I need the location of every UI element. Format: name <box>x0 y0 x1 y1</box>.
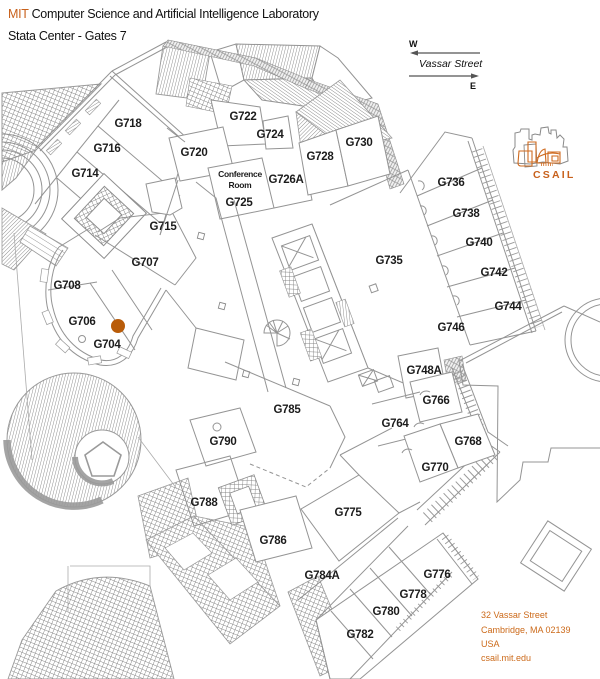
svg-text:G716: G716 <box>94 143 121 155</box>
svg-text:G704: G704 <box>94 339 122 351</box>
svg-text:G780: G780 <box>373 606 400 618</box>
svg-text:G768: G768 <box>455 436 483 448</box>
svg-text:MIT Computer Science and Artif: MIT Computer Science and Artificial Inte… <box>8 7 320 21</box>
svg-text:G740: G740 <box>466 237 493 249</box>
svg-text:G778: G778 <box>400 589 428 601</box>
svg-text:G707: G707 <box>132 257 159 269</box>
svg-text:G708: G708 <box>54 280 82 292</box>
svg-text:G722: G722 <box>230 111 257 123</box>
svg-text:G730: G730 <box>346 137 373 149</box>
svg-text:G714: G714 <box>72 168 100 180</box>
svg-text:G728: G728 <box>307 151 335 163</box>
svg-text:G776: G776 <box>424 569 451 581</box>
svg-text:Cambridge, MA 02139: Cambridge, MA 02139 <box>481 625 571 635</box>
svg-text:G786: G786 <box>260 535 287 547</box>
svg-text:G744: G744 <box>495 301 523 313</box>
svg-text:G766: G766 <box>423 395 450 407</box>
svg-text:G720: G720 <box>181 147 208 159</box>
svg-text:Conference: Conference <box>218 169 262 179</box>
svg-text:32 Vassar Street: 32 Vassar Street <box>481 610 548 620</box>
svg-text:G736: G736 <box>438 177 465 189</box>
svg-text:G718: G718 <box>115 118 143 130</box>
svg-text:G782: G782 <box>347 629 374 641</box>
svg-text:G746: G746 <box>438 322 465 334</box>
svg-text:G735: G735 <box>376 255 404 267</box>
svg-text:USA: USA <box>481 639 500 649</box>
svg-text:G788: G788 <box>191 497 219 509</box>
svg-text:G715: G715 <box>150 221 178 233</box>
svg-text:G770: G770 <box>422 462 449 474</box>
svg-text:Stata Center - Gates 7: Stata Center - Gates 7 <box>8 29 127 43</box>
svg-text:G706: G706 <box>69 316 96 328</box>
svg-text:G775: G775 <box>335 507 363 519</box>
svg-text:G726A: G726A <box>269 174 304 186</box>
svg-text:CSAIL: CSAIL <box>533 169 576 181</box>
svg-text:G724: G724 <box>257 129 285 141</box>
svg-text:G742: G742 <box>481 267 508 279</box>
svg-text:Vassar Street: Vassar Street <box>419 58 483 70</box>
svg-text:G790: G790 <box>210 436 237 448</box>
svg-text:G738: G738 <box>453 208 481 220</box>
svg-text:G725: G725 <box>226 197 254 209</box>
svg-text:E: E <box>470 81 476 91</box>
svg-text:csail.mit.edu: csail.mit.edu <box>481 653 531 663</box>
svg-text:G748A: G748A <box>407 365 442 377</box>
svg-text:G784A: G784A <box>305 570 340 582</box>
svg-text:W: W <box>409 39 418 49</box>
svg-text:G764: G764 <box>382 418 410 430</box>
svg-text:G785: G785 <box>274 404 302 416</box>
svg-text:Room: Room <box>229 180 253 190</box>
